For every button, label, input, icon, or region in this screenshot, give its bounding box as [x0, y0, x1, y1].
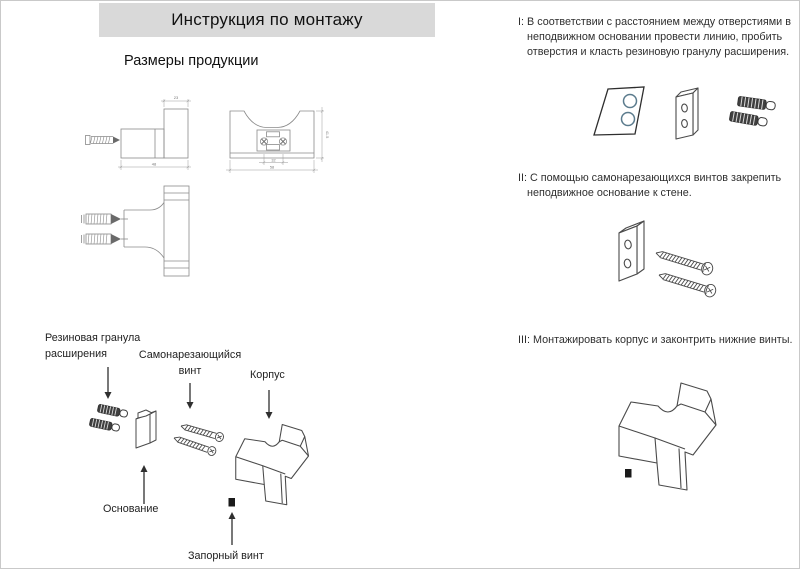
wall-anchor-section: [82, 234, 129, 244]
label-self-tapping-screw: Самонарезающийся винт: [133, 348, 247, 379]
dimension-drawings: 23 48 41.5: [1, 81, 501, 311]
screw-head-front: [260, 138, 286, 145]
lock-screw-dot: [625, 469, 632, 478]
step1-illustration: [561, 77, 796, 169]
dimension-label: 48: [152, 162, 157, 167]
dimension-label: 23: [174, 95, 179, 100]
step3-text: III: Монтажировать корпус и законтрить н…: [518, 333, 800, 348]
step1-text: I: В соответствии с расстоянием между от…: [518, 15, 800, 60]
marking-template-drawing: [594, 87, 644, 135]
dimension-line-right: [316, 107, 324, 162]
dimension-label: 58: [270, 166, 274, 170]
page-title-bar: Инструкция по монтажу: [99, 3, 435, 37]
step2-illustration: [591, 213, 781, 325]
anchor-drawing: [729, 111, 768, 127]
arrow-down-icon: [266, 390, 273, 419]
screw-drawing: [654, 247, 714, 276]
body-drawing: [236, 425, 309, 505]
dimension-label: 41.5: [325, 131, 329, 138]
arrow-down-icon: [105, 367, 112, 399]
section-title-dimensions: Размеры продукции: [124, 53, 259, 69]
assembled-body-drawing: [619, 383, 716, 490]
anchor-drawing: [89, 418, 120, 432]
page-title: Инструкция по монтажу: [171, 10, 362, 30]
arrow-up-icon: [141, 465, 148, 504]
wall-anchor-section: [82, 214, 129, 224]
arrow-down-icon: [187, 383, 194, 409]
dimension-label: 32: [271, 158, 275, 162]
label-base: Основание: [103, 502, 158, 518]
base-plate-drawing: [676, 88, 698, 139]
front-view-drawing: 41.5 32 58: [226, 107, 329, 173]
side-view-drawing: 23 48: [86, 95, 192, 170]
base-plate-drawing: [619, 221, 644, 281]
label-body: Корпус: [250, 368, 285, 384]
section-view-drawing: [82, 186, 190, 276]
instruction-page: Инструкция по монтажу Размеры продукции …: [0, 0, 800, 569]
step2-text: II: С помощью самонарезающихся винтов за…: [518, 171, 800, 201]
base-block-drawing: [136, 410, 156, 448]
screw-tip: [113, 137, 120, 144]
anchor-drawing: [737, 96, 775, 111]
dimension-line-top: [161, 99, 191, 107]
arrow-up-icon: [229, 512, 236, 545]
anchor-drawing: [97, 404, 128, 418]
label-lock-screw: Запорный винт: [188, 549, 264, 565]
step3-illustration: [586, 357, 781, 507]
lock-screw-dot: [229, 498, 236, 507]
